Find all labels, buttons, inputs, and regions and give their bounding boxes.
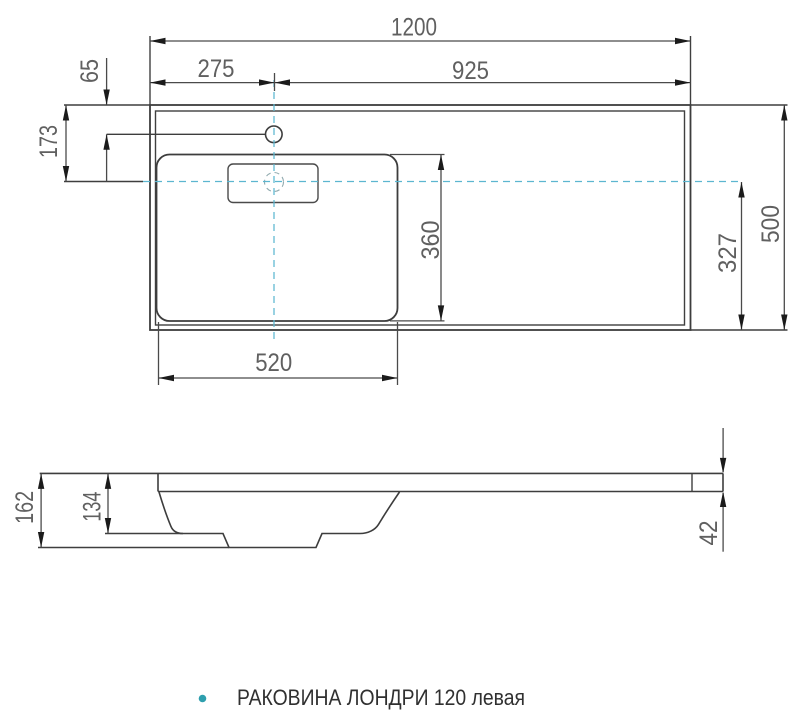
svg-text:925: 925 — [452, 57, 489, 85]
svg-text:360: 360 — [417, 221, 445, 260]
svg-text:500: 500 — [757, 205, 785, 243]
svg-text:327: 327 — [714, 233, 742, 273]
svg-text:173: 173 — [35, 125, 63, 158]
svg-text:162: 162 — [11, 491, 39, 524]
svg-text:1200: 1200 — [391, 14, 437, 42]
svg-text:520: 520 — [255, 349, 292, 377]
svg-text:РАКОВИНА ЛОНДРИ 120 левая: РАКОВИНА ЛОНДРИ 120 левая — [237, 685, 525, 710]
svg-text:65: 65 — [76, 59, 104, 83]
svg-text:42: 42 — [695, 521, 723, 546]
svg-text:275: 275 — [198, 55, 235, 83]
svg-text:134: 134 — [79, 492, 107, 522]
